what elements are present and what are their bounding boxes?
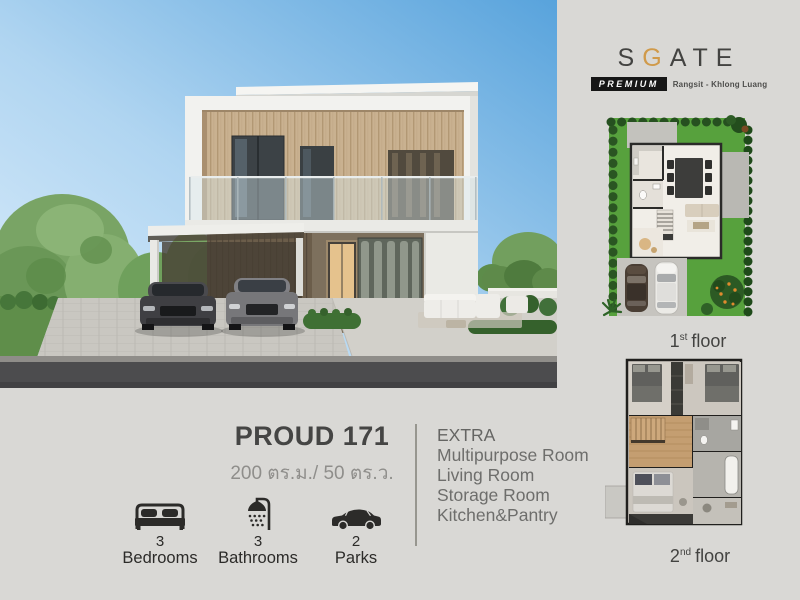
car-dark [140, 282, 216, 330]
plan1-house [631, 144, 721, 258]
extra-item: Living Room [437, 465, 589, 485]
outdoor-sofa [418, 294, 528, 328]
first-floor-label: 1stfloor [618, 331, 778, 352]
shower-icon [241, 493, 275, 531]
plan2-master-bedroom [629, 468, 693, 514]
location-label: Rangsit - Khlong Luang [673, 80, 768, 89]
bathrooms-count: 3 [210, 535, 306, 549]
parks-feature: 2 Parks [308, 495, 404, 567]
parks-label: Parks [308, 549, 404, 567]
extra-item: Multipurpose Room [437, 445, 589, 465]
bathrooms-feature: 3 Bathrooms [210, 495, 306, 567]
bedrooms-label: Bedrooms [112, 549, 208, 567]
extra-item: Kitchen&Pantry [437, 505, 589, 525]
extra-room-list: EXTRA Multipurpose Room Living Room Stor… [437, 425, 589, 525]
vertical-divider [415, 424, 417, 546]
road [0, 356, 557, 388]
plan1-patio [719, 152, 749, 218]
features-row: 3 Bedrooms 3 Bathrooms [112, 495, 404, 567]
property-area: 200 ตร.ม./ 50 ตร.ว. [212, 458, 412, 488]
extra-heading: EXTRA [437, 425, 589, 445]
brand-logo: SGATE PREMIUM Rangsit - Khlong Luang [588, 44, 770, 91]
brand-letters-ate: ATE [670, 44, 741, 72]
brand-wordmark: SGATE [588, 44, 770, 73]
second-floor-label: 2ndfloor [620, 546, 780, 567]
page-root: SGATE PREMIUM Rangsit - Khlong Luang [0, 0, 800, 600]
parks-count: 2 [308, 535, 404, 549]
plan2-bedrooms-top [629, 362, 741, 416]
extra-item: Storage Room [437, 485, 589, 505]
plan2-balcony [629, 514, 693, 524]
bedrooms-feature: 3 Bedrooms [112, 495, 208, 567]
balcony-glass-rail [189, 176, 478, 220]
bedrooms-count: 3 [112, 535, 208, 549]
first-floor-plan [601, 108, 759, 330]
brand-letter-s: S [618, 44, 643, 72]
property-title-block: PROUD 171 200 ตร.ม./ 50 ตร.ว. [212, 421, 412, 488]
property-name: PROUD 171 [212, 421, 412, 452]
premium-badge: PREMIUM [591, 77, 667, 91]
bed-icon [133, 501, 187, 531]
car-gray [226, 278, 298, 330]
second-floor-plan [605, 356, 745, 540]
plan2-lower-roof [605, 486, 627, 518]
bathrooms-label: Bathrooms [210, 549, 306, 567]
plan2-hall [629, 416, 693, 468]
brand-letter-g: G [642, 44, 669, 72]
house-second-floor [185, 82, 478, 234]
plan2-bathrooms [693, 416, 741, 524]
house-render-photo [0, 0, 557, 388]
car-icon [330, 507, 382, 531]
